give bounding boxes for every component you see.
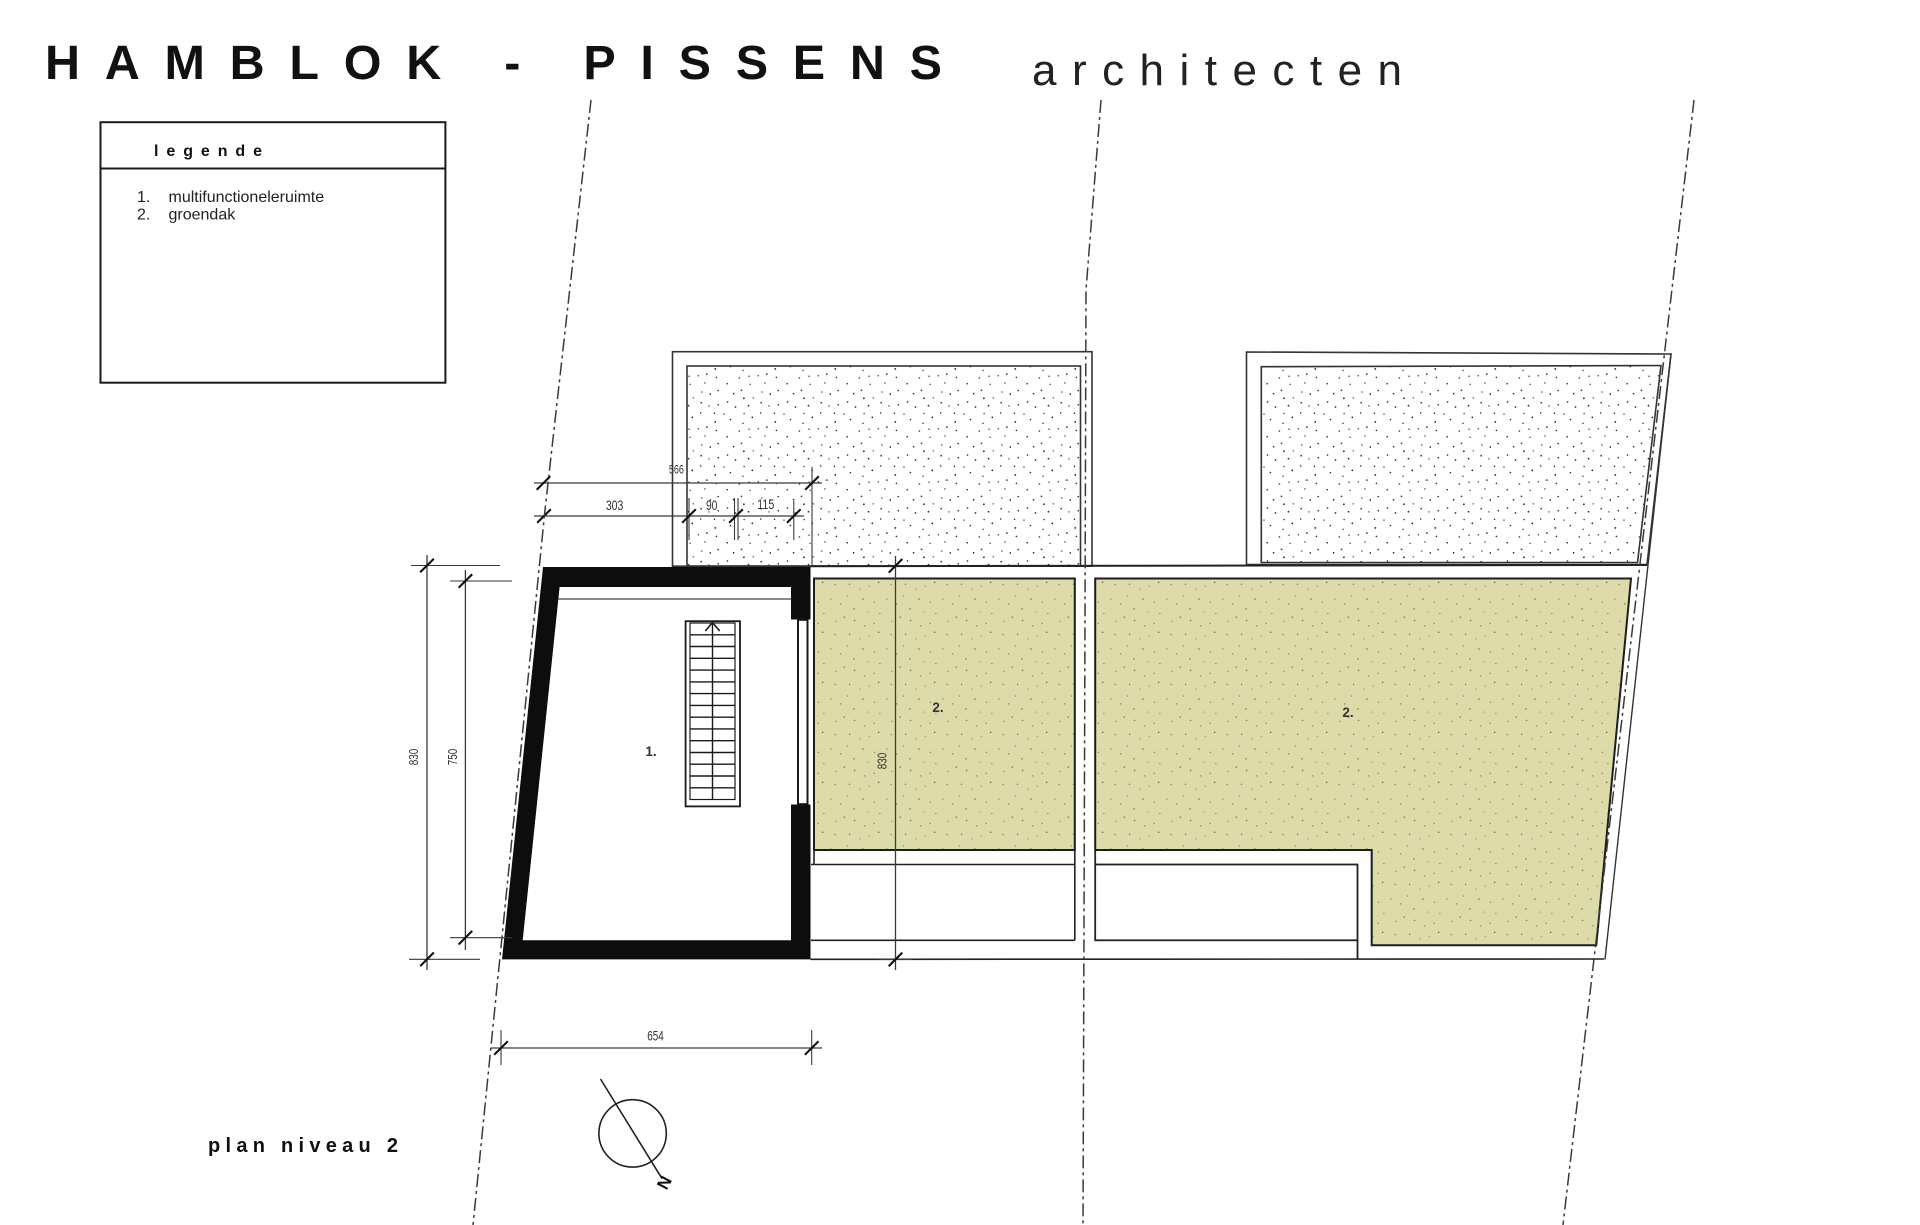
svg-text:566: 566 bbox=[669, 463, 684, 477]
svg-text:830: 830 bbox=[406, 749, 421, 766]
svg-text:multifunctioneleruimte: multifunctioneleruimte bbox=[169, 189, 325, 206]
svg-text:90: 90 bbox=[706, 498, 718, 513]
svg-text:plan niveau 2: plan niveau 2 bbox=[208, 1135, 398, 1157]
svg-text:830: 830 bbox=[875, 753, 890, 770]
svg-text:groendak: groendak bbox=[169, 207, 237, 224]
svg-text:1.: 1. bbox=[645, 744, 656, 759]
svg-text:654: 654 bbox=[647, 1028, 664, 1044]
svg-text:2.: 2. bbox=[137, 207, 150, 224]
svg-text:2.: 2. bbox=[1342, 705, 1353, 720]
svg-text:1.: 1. bbox=[137, 189, 150, 206]
svg-text:2.: 2. bbox=[932, 700, 943, 715]
svg-text:115: 115 bbox=[757, 497, 774, 512]
svg-text:750: 750 bbox=[445, 749, 460, 766]
svg-text:303: 303 bbox=[606, 497, 624, 513]
